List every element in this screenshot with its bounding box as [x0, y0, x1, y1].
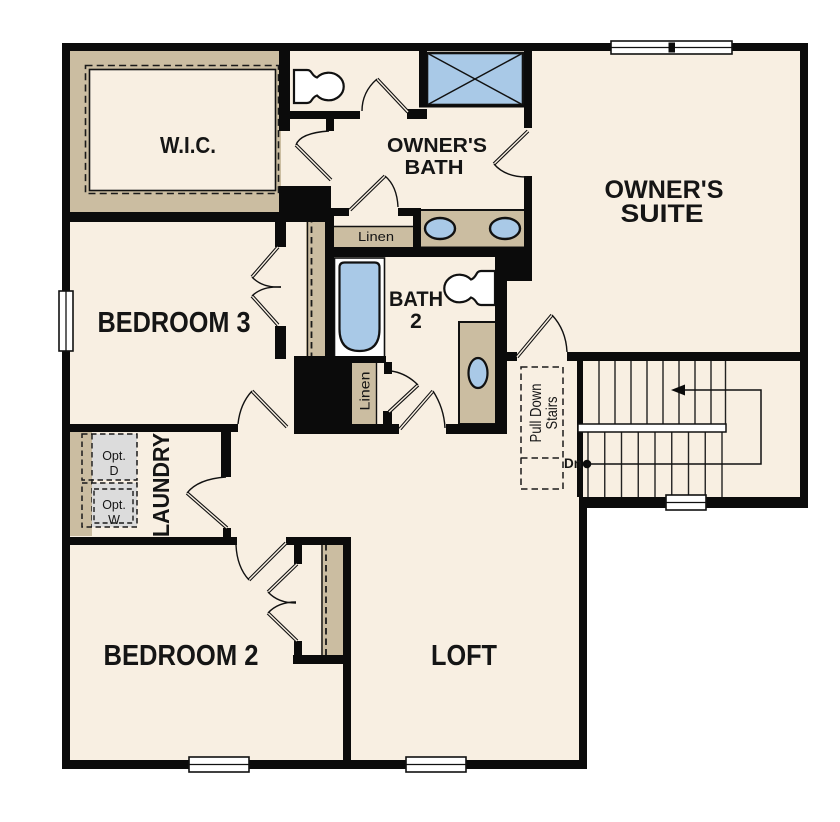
svg-text:Opt.: Opt. — [102, 498, 126, 512]
svg-text:Pull Down: Pull Down — [528, 384, 545, 443]
svg-text:Dn: Dn — [564, 456, 582, 471]
svg-text:BATH: BATH — [389, 288, 443, 311]
svg-text:OWNER'S: OWNER'S — [387, 135, 487, 157]
svg-text:Opt.: Opt. — [102, 449, 126, 463]
svg-text:2: 2 — [410, 310, 422, 333]
svg-text:BATH: BATH — [405, 157, 464, 179]
svg-text:Linen: Linen — [358, 372, 373, 411]
svg-text:Linen: Linen — [358, 229, 394, 244]
svg-text:D: D — [109, 464, 118, 478]
svg-text:W: W — [108, 513, 120, 527]
svg-text:BEDROOM 2: BEDROOM 2 — [104, 640, 259, 672]
svg-text:W.I.C.: W.I.C. — [160, 132, 216, 158]
svg-text:LAUNDRY: LAUNDRY — [148, 433, 174, 537]
svg-text:SUITE: SUITE — [621, 200, 704, 228]
svg-text:BEDROOM 3: BEDROOM 3 — [98, 307, 251, 339]
svg-text:Stairs: Stairs — [544, 397, 561, 430]
svg-text:LOFT: LOFT — [431, 640, 497, 672]
